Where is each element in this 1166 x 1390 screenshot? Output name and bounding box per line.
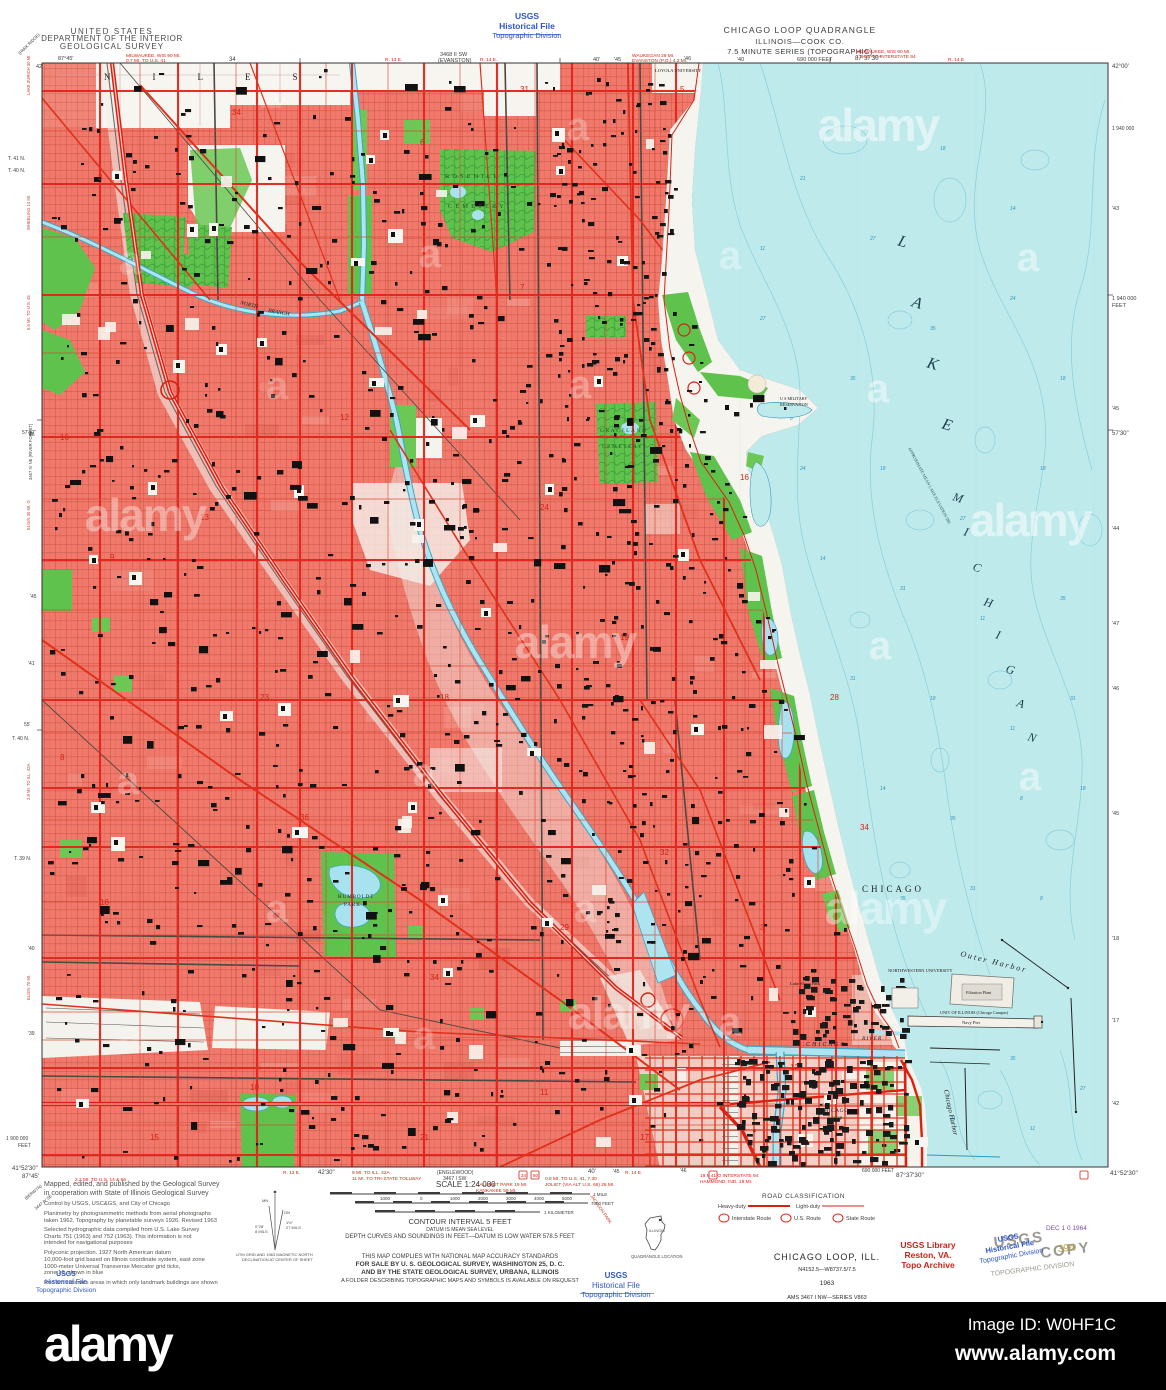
svg-text:FEET: FEET (18, 1143, 31, 1149)
svg-text:Heavy-duty: Heavy-duty (718, 1204, 746, 1210)
svg-text:31: 31 (850, 676, 856, 682)
svg-text:GEOLOGICAL SURVEY: GEOLOGICAL SURVEY (60, 42, 164, 51)
svg-text:40': 40' (593, 57, 600, 63)
svg-text:GRACELAND: GRACELAND (600, 428, 647, 434)
svg-text:27: 27 (759, 316, 766, 322)
svg-text:5: 5 (680, 85, 685, 94)
svg-text:15: 15 (150, 1133, 159, 1142)
svg-text:R. 14 E.: R. 14 E. (480, 57, 497, 63)
svg-text:50: 50 (533, 1173, 539, 1178)
svg-text:18: 18 (440, 693, 449, 702)
svg-text:Lake Shore Park: Lake Shore Park (790, 981, 821, 986)
svg-text:41°52'30": 41°52'30" (12, 1166, 38, 1172)
svg-text:A FOLDER DESCRIBING TOPOGRAPHI: A FOLDER DESCRIBING TOPOGRAPHIC MAPS AND… (341, 1278, 579, 1284)
svg-text:0.8 MI. TO U.S. 41, 7.30: 0.8 MI. TO U.S. 41, 7.30 (545, 1176, 597, 1182)
svg-text:'40: '40 (737, 57, 744, 63)
svg-text:18: 18 (880, 466, 886, 472)
svg-text:ELGIN 30 MI. O: ELGIN 30 MI. O (26, 499, 31, 530)
svg-text:27: 27 (1079, 1086, 1086, 1092)
svg-text:6: 6 (420, 138, 425, 147)
svg-text:87°45': 87°45' (58, 56, 74, 62)
svg-text:14: 14 (1010, 206, 1016, 212)
svg-text:Historical File: Historical File (592, 1281, 641, 1290)
svg-text:a: a (574, 887, 597, 931)
svg-text:11 MI. TO TRI-STATE TOLLWAY: 11 MI. TO TRI-STATE TOLLWAY (352, 1176, 422, 1182)
svg-text:1 940 000: 1 940 000 (1112, 126, 1134, 132)
svg-text:ILLINOIS: ILLINOIS (649, 1229, 665, 1233)
svg-text:7.5 MINUTE SERIES (TOPOGRAPHIC: 7.5 MINUTE SERIES (TOPOGRAPHIC) (727, 47, 873, 56)
svg-text:Topo Archive: Topo Archive (901, 1260, 955, 1270)
svg-text:12: 12 (790, 1063, 799, 1072)
svg-text:31: 31 (520, 85, 529, 94)
svg-text:3467 IV NE (RIVER FOREST): 3467 IV NE (RIVER FOREST) (28, 423, 33, 480)
svg-text:a: a (419, 232, 442, 276)
svg-text:27 MILS: 27 MILS (286, 1225, 301, 1230)
svg-text:USGS: USGS (56, 1271, 76, 1278)
svg-text:alamy: alamy (818, 99, 941, 151)
svg-text:'44: '44 (1112, 526, 1119, 532)
svg-text:State Route: State Route (846, 1216, 875, 1222)
svg-text:41°52'30": 41°52'30" (1110, 1169, 1139, 1177)
svg-text:a: a (719, 234, 742, 278)
svg-text:'45: '45 (30, 594, 37, 600)
svg-text:AMS 3467 I NW—SERIES V863: AMS 3467 I NW—SERIES V863 (787, 1295, 866, 1301)
svg-text:3: 3 (760, 923, 765, 932)
svg-text:a: a (569, 363, 592, 407)
svg-text:a: a (119, 239, 142, 283)
svg-text:NORTHWESTERN UNIVERSITY: NORTHWESTERN UNIVERSITY (888, 968, 953, 973)
svg-text:1 900 000: 1 900 000 (6, 1136, 28, 1142)
svg-text:FOR SALE BY U. S. GEOLOGICAL S: FOR SALE BY U. S. GEOLOGICAL SURVEY, WAS… (356, 1261, 565, 1268)
svg-text:Polyconic projection. 1927 No: Polyconic projection. 1927 North America… (44, 1250, 171, 1256)
svg-text:16: 16 (60, 433, 69, 442)
svg-text:JOLIET (VIA ALT U.S. 66) 26 MI: JOLIET (VIA ALT U.S. 66) 26 MI. (545, 1182, 615, 1188)
svg-text:CEMETERY: CEMETERY (602, 444, 643, 450)
svg-text:LOYOLA UNIVERSITY: LOYOLA UNIVERSITY (655, 68, 702, 73)
svg-text:'43: '43 (1112, 206, 1119, 212)
svg-text:31: 31 (900, 586, 906, 592)
svg-text:R. 13 E.: R. 13 E. (385, 57, 402, 63)
svg-text:18: 18 (930, 696, 936, 702)
svg-text:12: 12 (340, 413, 349, 422)
svg-text:U.S. Route: U.S. Route (794, 1216, 821, 1222)
svg-text:3000: 3000 (506, 1196, 517, 1201)
svg-text:alamy: alamy (85, 489, 208, 541)
svg-text:Historical File: Historical File (499, 21, 555, 31)
svg-text:Mapped, edited, and published: Mapped, edited, and published by the Geo… (44, 1181, 220, 1188)
svg-text:24: 24 (540, 503, 549, 512)
svg-text:ILLINOIS—COOK CO.: ILLINOIS—COOK CO. (755, 37, 844, 46)
svg-text:36: 36 (300, 813, 309, 822)
svg-text:a: a (1019, 755, 1042, 799)
svg-text:a: a (867, 367, 890, 411)
svg-text:Filtration Plant: Filtration Plant (966, 990, 992, 995)
svg-text:USGS: USGS (515, 11, 539, 21)
svg-text:WHEELING 14 MI.: WHEELING 14 MI. (26, 195, 31, 230)
svg-text:RESERVATION: RESERVATION (780, 402, 808, 407)
svg-text:'40: '40 (28, 946, 35, 952)
svg-text:USGS: USGS (605, 1271, 628, 1280)
svg-text:34: 34 (229, 57, 236, 63)
svg-text:11: 11 (760, 246, 765, 252)
svg-text:32: 32 (660, 848, 669, 857)
svg-text:'45: '45 (613, 1169, 620, 1175)
svg-text:SCALE 1:24 000: SCALE 1:24 000 (436, 1180, 496, 1189)
svg-text:R. 13 E.: R. 13 E. (283, 1170, 300, 1176)
svg-text:FEET: FEET (1112, 303, 1127, 309)
svg-text:alamy: alamy (970, 494, 1093, 546)
svg-text:34: 34 (521, 1173, 527, 1178)
svg-text:18: 18 (1080, 786, 1086, 792)
svg-text:1000: 1000 (450, 1196, 461, 1201)
svg-text:CHICAGO: CHICAGO (806, 1042, 847, 1048)
svg-text:1963: 1963 (820, 1280, 835, 1287)
svg-text:1000: 1000 (380, 1196, 391, 1201)
svg-text:8 MILS: 8 MILS (255, 1229, 268, 1234)
svg-text:'46: '46 (1112, 686, 1119, 692)
svg-text:14: 14 (820, 556, 826, 562)
svg-text:'46: '46 (680, 1168, 687, 1174)
svg-text:a: a (266, 364, 289, 408)
svg-text:31: 31 (1070, 696, 1076, 702)
svg-text:www.alamy.com: www.alamy.com (954, 1342, 1116, 1365)
svg-text:18: 18 (1060, 376, 1066, 382)
svg-text:Topographic Division: Topographic Division (581, 1290, 650, 1299)
svg-text:34: 34 (430, 973, 439, 982)
svg-text:CHICAGO: CHICAGO (820, 1108, 849, 1114)
svg-text:ROSEHILL: ROSEHILL (445, 173, 500, 180)
svg-text:CHICAGO LOOP, ILL.: CHICAGO LOOP, ILL. (774, 1252, 880, 1262)
svg-text:Reston, VA.: Reston, VA. (904, 1250, 951, 1260)
svg-text:28: 28 (830, 693, 839, 702)
svg-text:Light-duty: Light-duty (796, 1204, 820, 1210)
svg-text:alamy: alamy (825, 882, 948, 934)
svg-text:DEPTH CURVES AND SOUNDINGS IN: DEPTH CURVES AND SOUNDINGS IN FEET—DATUM… (345, 1234, 575, 1240)
svg-text:R. 14 E.: R. 14 E. (948, 57, 965, 63)
svg-text:29: 29 (560, 923, 569, 932)
svg-text:34: 34 (860, 823, 869, 832)
svg-text:Historical File: Historical File (45, 1279, 87, 1286)
svg-text:a: a (567, 105, 590, 149)
svg-text:7: 7 (520, 283, 525, 292)
svg-text:USGS Library: USGS Library (900, 1240, 956, 1250)
svg-text:42'30": 42'30" (318, 1170, 335, 1176)
svg-text:87°37'30": 87°37'30" (896, 1171, 925, 1179)
svg-text:CONTOUR INTERVAL 5 FEET: CONTOUR INTERVAL 5 FEET (408, 1217, 511, 1226)
svg-text:Interstate Route: Interstate Route (732, 1216, 771, 1222)
svg-text:1 MILE: 1 MILE (593, 1192, 607, 1197)
svg-text:PARK: PARK (344, 903, 361, 908)
svg-text:1 KILOMETER: 1 KILOMETER (544, 1210, 575, 1215)
svg-text:11: 11 (1010, 726, 1015, 732)
svg-text:17: 17 (640, 1133, 649, 1142)
svg-text:alamy: alamy (44, 1316, 174, 1372)
svg-text:UNIV OF ILLINOIS (Chicago Camp: UNIV OF ILLINOIS (Chicago Campus) (940, 1010, 1009, 1015)
svg-text:690 000 FEET: 690 000 FEET (797, 57, 833, 63)
svg-text:11: 11 (540, 1088, 549, 1097)
svg-text:41: 41 (711, 1173, 717, 1178)
svg-text:57'30": 57'30" (1112, 431, 1129, 437)
svg-text:a: a (1017, 236, 1040, 280)
svg-text:16: 16 (740, 473, 749, 482)
svg-text:9 MI. TO ILL. 42A: 9 MI. TO ILL. 42A (352, 1170, 390, 1176)
svg-text:8: 8 (1040, 896, 1043, 902)
svg-text:HAMMOND, IND. 19 MI.: HAMMOND, IND. 19 MI. (700, 1179, 752, 1185)
svg-text:34: 34 (232, 108, 241, 117)
svg-text:'17: '17 (1112, 1018, 1119, 1024)
svg-text:2.8 MI. TO ILL. 42A: 2.8 MI. TO ILL. 42A (26, 763, 31, 800)
svg-text:in cooperation with State of I: in cooperation with State of Illinois Ge… (44, 1190, 209, 1197)
svg-text:DECLINATION AT CENTER OF SHEET: DECLINATION AT CENTER OF SHEET (242, 1257, 313, 1262)
svg-text:ELGIN 70 MI.: ELGIN 70 MI. (26, 975, 31, 1000)
svg-text:1.8 MI. TO INTERSTATE 94: 1.8 MI. TO INTERSTATE 94 (856, 54, 916, 60)
svg-text:RIVER: RIVER (861, 1036, 882, 1042)
svg-text:'41: '41 (28, 661, 35, 667)
svg-text:'47: '47 (1112, 621, 1119, 627)
svg-text:6.6 MI. TO U.S. 45: 6.6 MI. TO U.S. 45 (26, 295, 31, 330)
svg-text:U S MILITARY: U S MILITARY (780, 396, 807, 401)
svg-text:5000: 5000 (562, 1196, 573, 1201)
svg-text:7000 FEET: 7000 FEET (591, 1201, 614, 1206)
svg-text:8: 8 (60, 753, 65, 762)
svg-text:R. 14 E.: R. 14 E. (625, 1170, 642, 1176)
svg-text:'45: '45 (1112, 811, 1119, 817)
svg-text:'45: '45 (614, 57, 621, 63)
svg-text:9: 9 (110, 553, 115, 562)
svg-text:a: a (119, 1014, 142, 1058)
svg-text:THIS MAP COMPLIES WITH NATIONA: THIS MAP COMPLIES WITH NATIONAL MAP ACCU… (362, 1254, 559, 1260)
svg-text:27: 27 (959, 516, 966, 522)
svg-text:4000: 4000 (534, 1196, 545, 1201)
svg-text:taken 1962. Topography by pla: taken 1962. Topography by planetable sur… (44, 1218, 217, 1224)
svg-text:31: 31 (970, 886, 976, 892)
svg-text:Topographic Division: Topographic Division (36, 1287, 96, 1294)
svg-text:'18: '18 (1112, 936, 1119, 942)
svg-text:Topographic Division: Topographic Division (492, 31, 561, 40)
svg-text:T. 41 N.: T. 41 N. (8, 156, 25, 162)
svg-text:1 940 000: 1 940 000 (1112, 296, 1136, 302)
svg-text:10: 10 (250, 1083, 259, 1092)
svg-text:'42: '42 (1112, 1101, 1119, 1107)
svg-text:16: 16 (100, 898, 109, 907)
svg-text:T. 40 N.: T. 40 N. (8, 168, 25, 174)
svg-text:a: a (413, 751, 436, 795)
svg-text:10,000-foot grid based on Illi: 10,000-foot grid based on Illinois coord… (44, 1257, 205, 1263)
svg-text:MN: MN (262, 1198, 268, 1203)
svg-text:14: 14 (880, 786, 886, 792)
svg-text:a: a (719, 1000, 742, 1044)
svg-text:a: a (869, 624, 892, 668)
svg-text:35: 35 (1060, 596, 1066, 602)
svg-text:intended for navigational purp: intended for navigational purposes (44, 1240, 133, 1246)
svg-text:T. 40 N.: T. 40 N. (12, 736, 29, 742)
svg-text:Image ID: W0HF1C: Image ID: W0HF1C (968, 1315, 1116, 1334)
svg-text:alamy: alamy (568, 987, 691, 1039)
svg-text:'45: '45 (1112, 406, 1119, 412)
svg-text:QUADRANGLE LOCATION: QUADRANGLE LOCATION (631, 1254, 683, 1259)
svg-text:HUMBOLDT: HUMBOLDT (338, 895, 374, 900)
svg-text:11: 11 (980, 616, 985, 622)
svg-text:11: 11 (1030, 1126, 1035, 1132)
svg-text:Planimetry by photogrammetric: Planimetry by photogrammetric methods fr… (44, 1211, 211, 1217)
svg-text:a: a (266, 887, 289, 931)
svg-text:DATUM IS MEAN SEA LEVEL: DATUM IS MEAN SEA LEVEL (426, 1227, 494, 1233)
svg-text:Navy Pier: Navy Pier (962, 1020, 981, 1025)
svg-text:Selected hydrographic data com: Selected hydrographic data compiled from… (44, 1227, 199, 1233)
svg-text:18: 18 (1040, 466, 1046, 472)
svg-text:LOOP: LOOP (828, 1116, 842, 1122)
svg-text:alamy: alamy (515, 616, 638, 668)
svg-text:T. 39 N.: T. 39 N. (14, 856, 31, 862)
svg-text:Control by USGS, USC&GS, and C: Control by USGS, USC&GS, and City of Chi… (44, 1201, 170, 1207)
svg-text:GN: GN (284, 1210, 290, 1215)
svg-text:27: 27 (869, 236, 876, 242)
svg-text:CHICAGO LOOP QUADRANGLE: CHICAGO LOOP QUADRANGLE (724, 25, 877, 35)
svg-text:DEC 1 0 1964: DEC 1 0 1964 (1046, 1225, 1087, 1232)
svg-text:21: 21 (799, 176, 806, 182)
svg-text:21: 21 (420, 1133, 429, 1142)
svg-text:39ℓℓ: 39ℓℓ (1057, 1242, 1076, 1255)
svg-text:a: a (413, 1014, 436, 1058)
svg-text:35: 35 (930, 326, 936, 332)
svg-text:35: 35 (850, 376, 856, 382)
svg-text:87°45': 87°45' (22, 1174, 39, 1180)
svg-text:24: 24 (799, 466, 806, 472)
svg-text:690 000 FEET: 690 000 FEET (862, 1168, 894, 1174)
svg-text:ROAD CLASSIFICATION: ROAD CLASSIFICATION (762, 1193, 845, 1200)
svg-text:2000: 2000 (478, 1196, 489, 1201)
svg-text:35: 35 (950, 816, 956, 822)
svg-text:LAKE ZURICH 30 MI.: LAKE ZURICH 30 MI. (26, 55, 31, 96)
svg-text:'39: '39 (28, 1031, 35, 1037)
svg-text:23: 23 (260, 693, 269, 702)
svg-text:3: 3 (98, 173, 103, 182)
svg-text:N4152.5—W8737.5/7.5: N4152.5—W8737.5/7.5 (798, 1267, 855, 1273)
svg-text:18: 18 (940, 146, 946, 152)
svg-text:35: 35 (1010, 1056, 1016, 1062)
svg-text:24: 24 (1009, 296, 1016, 302)
svg-text:NILES: NILES (104, 72, 340, 82)
svg-text:40': 40' (588, 1169, 596, 1175)
svg-text:AND BY THE STATE GEOLOGICAL SU: AND BY THE STATE GEOLOGICAL SURVEY, URBA… (361, 1269, 559, 1276)
svg-text:CEMETERY: CEMETERY (448, 203, 507, 210)
svg-text:55': 55' (24, 722, 31, 728)
svg-text:a: a (117, 759, 140, 803)
svg-text:42°00': 42°00' (1112, 64, 1129, 70)
